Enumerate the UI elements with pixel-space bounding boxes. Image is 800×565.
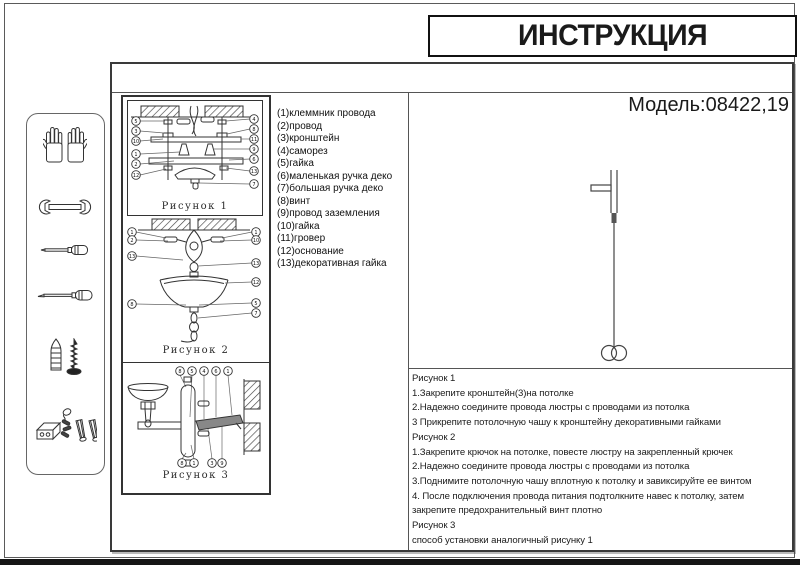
svg-text:12: 12 — [253, 280, 259, 286]
svg-text:1: 1 — [192, 461, 195, 467]
svg-text:13: 13 — [251, 169, 257, 175]
svg-text:8: 8 — [178, 369, 181, 375]
hook-mount-drawing — [138, 219, 250, 342]
parts-list-item: (12)основание — [277, 246, 397, 259]
instruction-sheet: ИНСТРУКЦИЯ — [0, 0, 800, 565]
figure-3-label: Рисунок 3 — [123, 470, 269, 481]
svg-text:1: 1 — [130, 230, 133, 236]
instruction-line: 1.Закрепите кронштейн(3)на потолке — [412, 387, 788, 402]
instruction-line: 2.Надежно соедините провода люстры с про… — [412, 460, 788, 475]
svg-text:13: 13 — [253, 261, 259, 267]
pendant-lamp-diagram — [585, 165, 637, 365]
svg-text:4: 4 — [252, 117, 255, 123]
figure-1-box: 5 3 10 1 2 12 4 8 11 9 6 13 7 — [127, 100, 263, 216]
tools-panel — [26, 113, 105, 475]
svg-text:3: 3 — [134, 129, 137, 135]
svg-text:2: 2 — [130, 238, 133, 244]
instruction-line: 3 Прикрепите потолочную чашу к кронштейн… — [412, 416, 788, 431]
wrench-icon — [37, 196, 93, 218]
figure-3-diagram: 8 5 4 6 1 8 1 3 9 — [124, 365, 264, 469]
svg-text:8: 8 — [180, 461, 183, 467]
wall-sconce-drawing — [128, 377, 260, 466]
parts-list-item: (9)провод заземления — [277, 208, 397, 221]
parts-list-item: (6)маленькая ручка деко — [277, 171, 397, 184]
figure-2-diagram: 1 2 13 8 1 10 13 12 5 7 — [124, 217, 264, 343]
model-label: Модель:08422,19 — [409, 94, 789, 117]
svg-text:8: 8 — [130, 302, 133, 308]
terminal-block-and-anchors-icon — [35, 404, 97, 448]
svg-text:6: 6 — [214, 369, 217, 375]
svg-text:6: 6 — [252, 157, 255, 163]
svg-text:1: 1 — [254, 230, 257, 236]
instruction-line: Рисунок 3 — [412, 519, 788, 534]
svg-text:1: 1 — [134, 152, 137, 158]
instruction-line: способ установки аналогичный рисунку 1 — [412, 534, 788, 549]
svg-text:5: 5 — [254, 301, 257, 307]
screwdriver-icon — [39, 242, 91, 258]
instruction-line: 4. После подключения провода питания под… — [412, 490, 788, 519]
parts-list: (1)клеммник провода (2)провод (3)кронште… — [277, 108, 397, 271]
svg-text:9: 9 — [252, 147, 255, 153]
svg-text:4: 4 — [202, 369, 205, 375]
figure-1-label: Рисунок 1 — [128, 201, 262, 212]
page-title: ИНСТРУКЦИЯ — [518, 19, 707, 53]
figure-1-diagram: 5 3 10 1 2 12 4 8 11 9 6 13 7 — [129, 104, 260, 194]
figure-2-label: Рисунок 2 — [123, 345, 269, 356]
svg-text:9: 9 — [220, 461, 223, 467]
callout-leaders — [136, 232, 252, 318]
parts-list-item: (1)клеммник провода — [277, 108, 397, 121]
instruction-line: 3.Поднимите потолочную чашу вплотную к п… — [412, 475, 788, 490]
instructions-divider — [408, 368, 792, 369]
header-divider — [112, 92, 792, 93]
figures-panel: 5 3 10 1 2 12 4 8 11 9 6 13 7 — [121, 95, 271, 495]
vertical-divider — [408, 92, 409, 550]
svg-text:3: 3 — [210, 461, 213, 467]
instruction-line: 2.Надежно соедините провода люстры с про… — [412, 401, 788, 416]
long-screwdriver-icon — [37, 286, 93, 304]
svg-text:8: 8 — [252, 127, 255, 133]
svg-text:13: 13 — [129, 254, 135, 260]
svg-text:1: 1 — [226, 369, 229, 375]
parts-list-item: (2)провод — [277, 121, 397, 134]
svg-text:10: 10 — [253, 238, 259, 244]
instruction-line: 1.Закрепите крючок на потолке, повесте л… — [412, 446, 788, 461]
svg-text:5: 5 — [190, 369, 193, 375]
figure-divider — [123, 362, 269, 363]
callout-leaders — [140, 119, 250, 184]
instruction-line: Рисунок 2 — [412, 431, 788, 446]
ceiling-mount-drawing — [131, 106, 258, 189]
svg-text:5: 5 — [134, 119, 137, 125]
wall-plug-and-screw-icon — [47, 338, 85, 378]
svg-text:7: 7 — [252, 182, 255, 188]
callout-circles — [132, 115, 259, 189]
main-panel: Модель:08422,19 — [110, 62, 794, 552]
svg-text:2: 2 — [134, 162, 137, 168]
page-bottom-edge — [0, 559, 800, 565]
svg-text:12: 12 — [133, 173, 139, 179]
parts-list-item: (4)саморез — [277, 146, 397, 159]
assembly-instructions: Рисунок 1 1.Закрепите кронштейн(3)на пот… — [412, 372, 788, 548]
parts-list-item: (13)декоративная гайка — [277, 258, 397, 271]
parts-list-item: (3)кронштейн — [277, 133, 397, 146]
work-gloves-icon — [43, 124, 87, 168]
parts-list-item: (5)гайка — [277, 158, 397, 171]
title-box: ИНСТРУКЦИЯ — [428, 15, 797, 57]
parts-list-item: (10)гайка — [277, 221, 397, 234]
parts-list-item: (7)большая ручка деко — [277, 183, 397, 196]
instruction-line: Рисунок 1 — [412, 372, 788, 387]
svg-text:10: 10 — [133, 139, 139, 145]
svg-text:7: 7 — [254, 311, 257, 317]
parts-list-item: (11)гровер — [277, 233, 397, 246]
parts-list-item: (8)винт — [277, 196, 397, 209]
svg-text:11: 11 — [251, 137, 257, 143]
